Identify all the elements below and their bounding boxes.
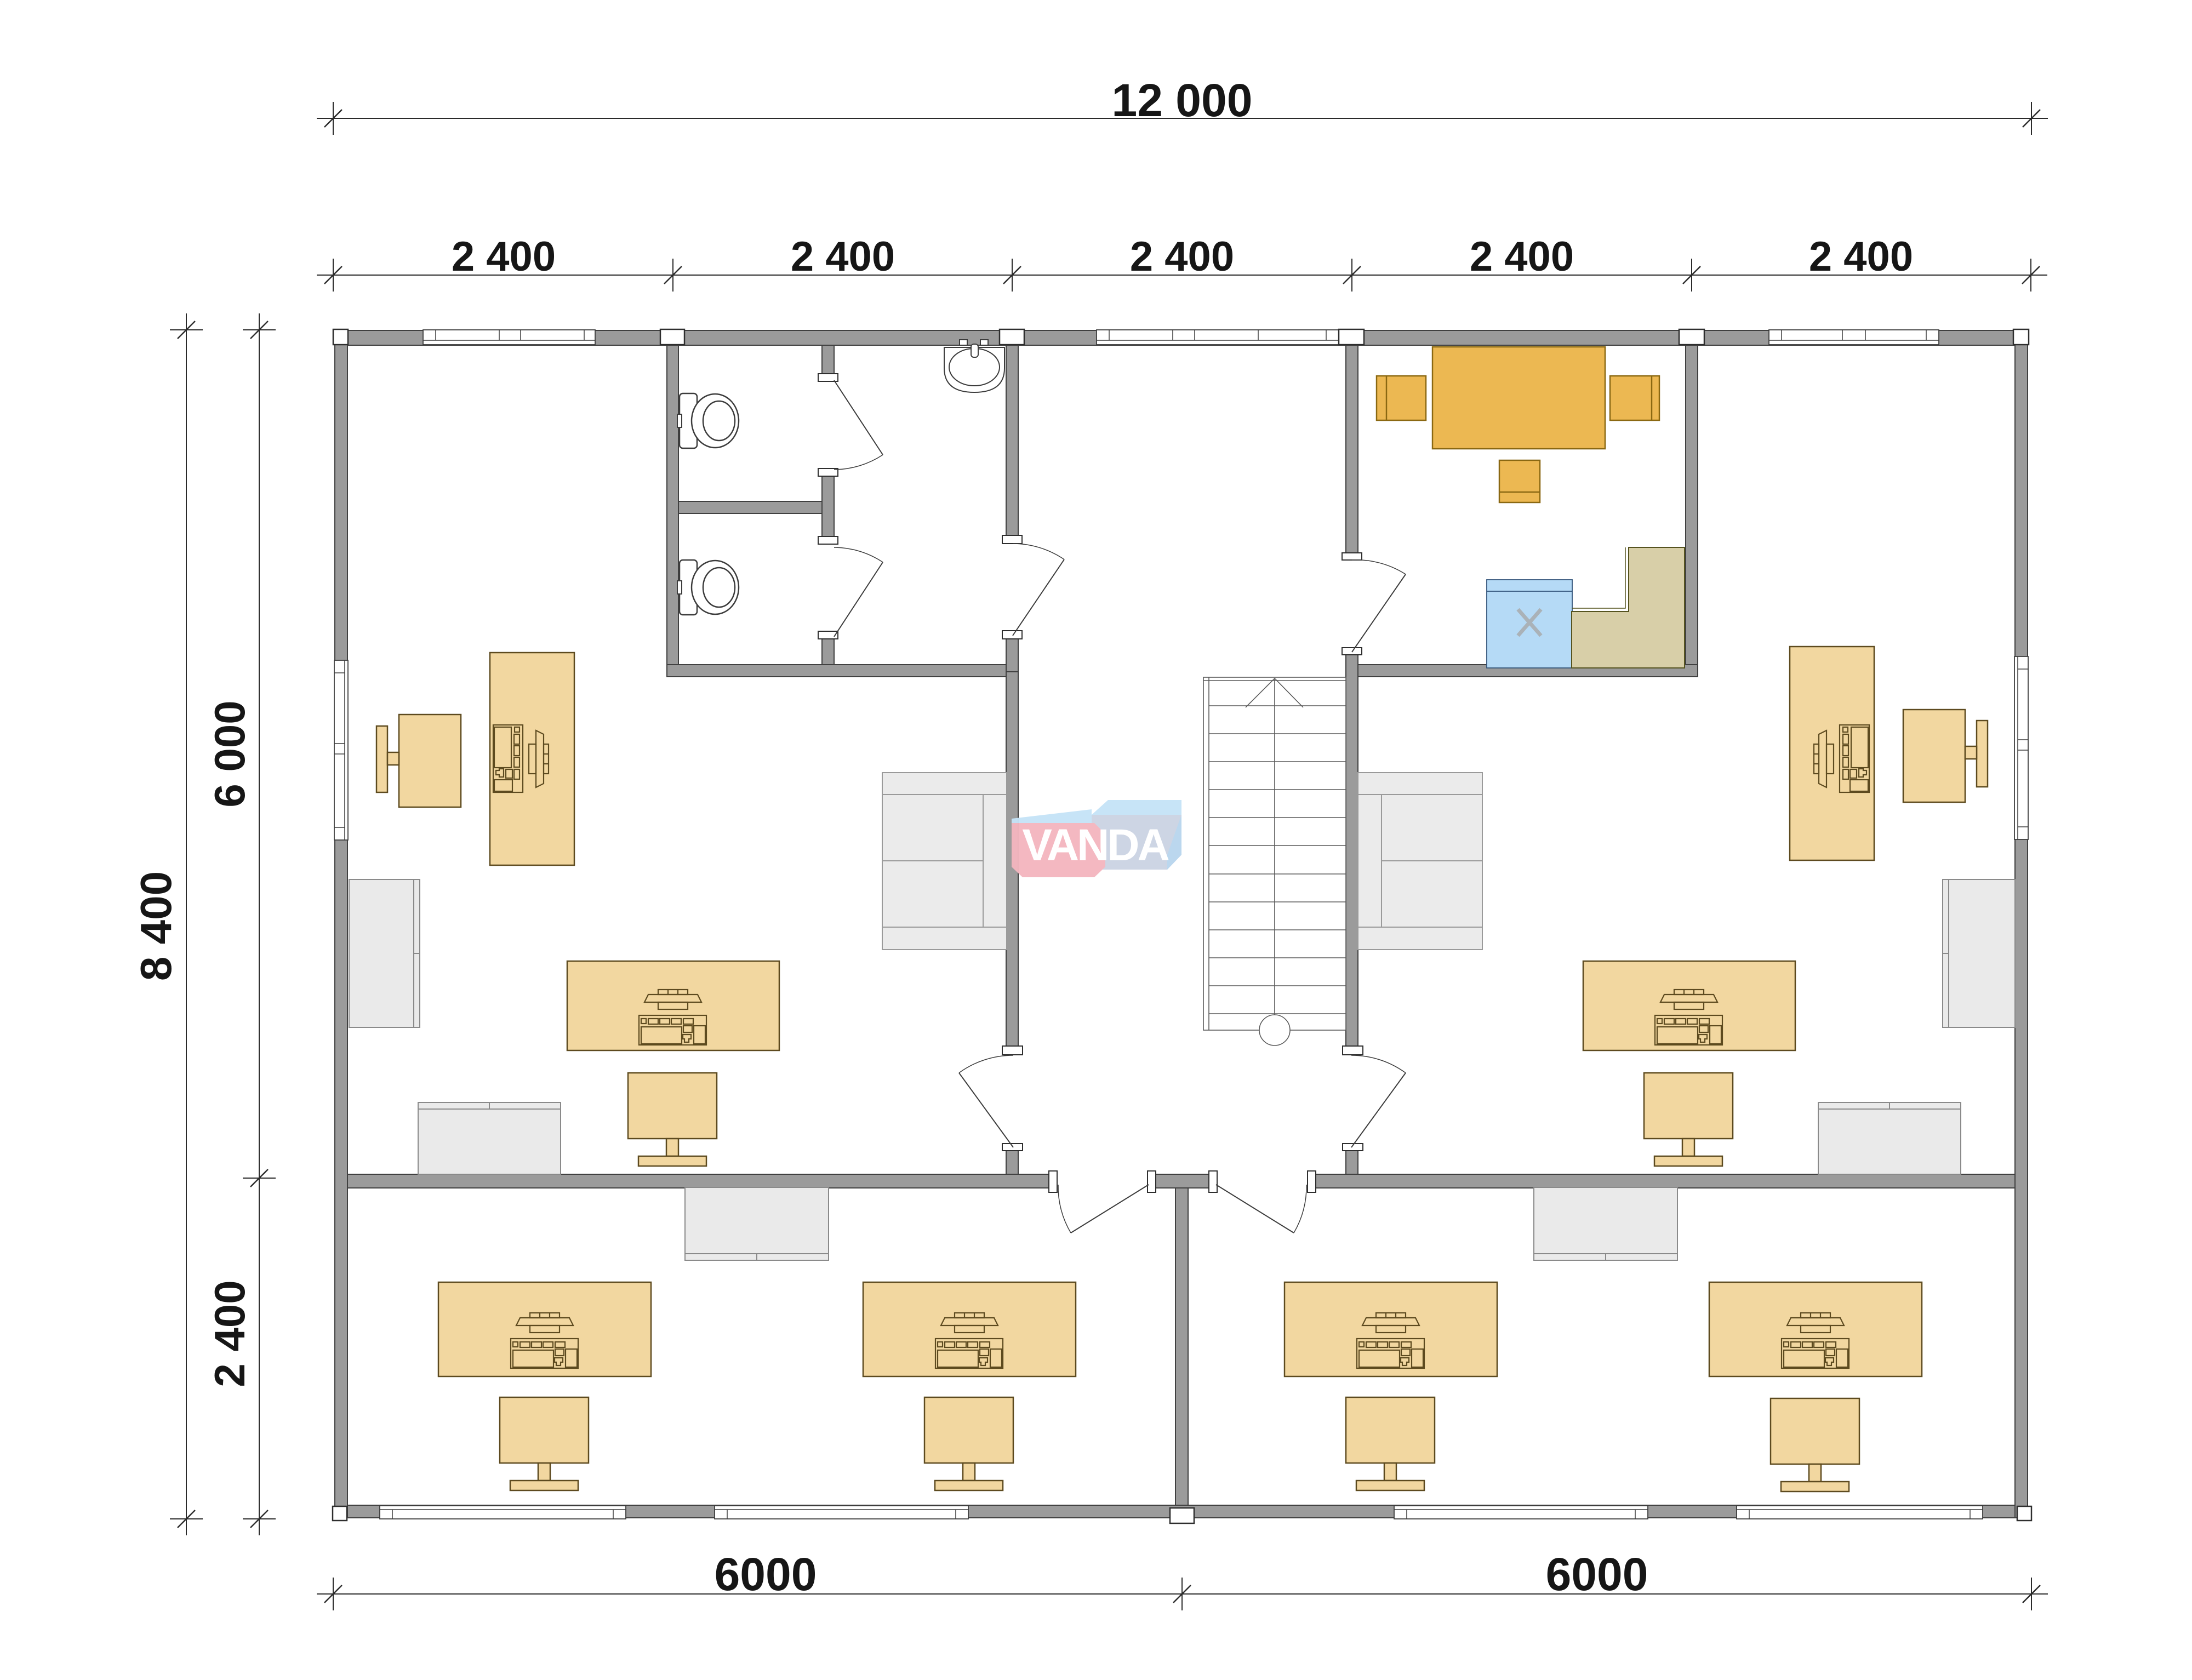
svg-text:2 400: 2 400: [452, 233, 556, 280]
svg-text:6000: 6000: [715, 1548, 817, 1600]
svg-text:2 400: 2 400: [1130, 233, 1234, 280]
svg-text:6000: 6000: [1546, 1548, 1648, 1600]
svg-text:6 000: 6 000: [206, 700, 254, 807]
svg-text:8 400: 8 400: [132, 871, 180, 981]
svg-text:12 000: 12 000: [1112, 75, 1253, 126]
svg-text:VANDA: VANDA: [1022, 820, 1169, 870]
svg-text:2 400: 2 400: [1470, 233, 1574, 280]
svg-text:2 400: 2 400: [206, 1280, 254, 1387]
svg-text:2 400: 2 400: [791, 233, 895, 280]
svg-text:2 400: 2 400: [1809, 233, 1913, 280]
